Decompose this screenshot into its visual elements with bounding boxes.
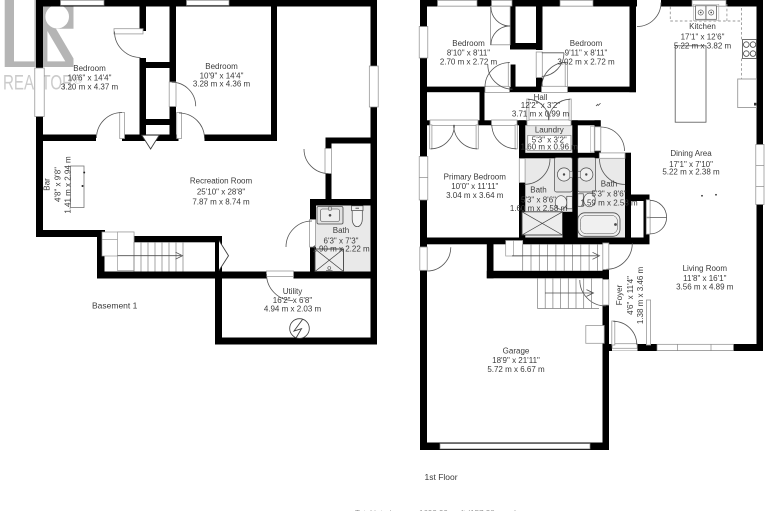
svg-text:10'0" x 11'11": 10'0" x 11'11" bbox=[451, 182, 498, 191]
svg-text:Bar: Bar bbox=[43, 178, 52, 191]
svg-text:10'6" x 14'4": 10'6" x 14'4" bbox=[68, 73, 112, 82]
svg-text:3.20 m x 4.37 m: 3.20 m x 4.37 m bbox=[61, 82, 119, 91]
svg-text:Bedroom: Bedroom bbox=[205, 62, 238, 71]
svg-text:Kitchen: Kitchen bbox=[689, 22, 716, 31]
svg-text:5.22 m x 2.38 m: 5.22 m x 2.38 m bbox=[662, 168, 720, 177]
svg-text:Basement 1: Basement 1 bbox=[92, 301, 138, 311]
svg-text:Foyer: Foyer bbox=[615, 284, 624, 305]
svg-text:3.28 m x 4.36 m: 3.28 m x 4.36 m bbox=[193, 79, 251, 88]
svg-text:4'6" x 11'4": 4'6" x 11'4" bbox=[626, 276, 635, 315]
svg-text:Utility: Utility bbox=[283, 287, 303, 296]
svg-text:5.22 m x 3.82 m: 5.22 m x 3.82 m bbox=[674, 42, 732, 51]
svg-text:3.71 m x 0.99 m: 3.71 m x 0.99 m bbox=[512, 109, 570, 118]
svg-text:Bath: Bath bbox=[601, 180, 617, 189]
svg-text:3.04 m x 3.64 m: 3.04 m x 3.64 m bbox=[446, 191, 504, 200]
svg-text:4'8" x 9'8": 4'8" x 9'8" bbox=[53, 167, 62, 202]
svg-text:Garage: Garage bbox=[503, 347, 530, 356]
svg-text:2.70 m x 2.72 m: 2.70 m x 2.72 m bbox=[440, 58, 498, 67]
svg-text:5'3" x 8'6": 5'3" x 8'6" bbox=[521, 195, 556, 204]
svg-text:Bedroom: Bedroom bbox=[73, 64, 106, 73]
svg-text:Bath: Bath bbox=[333, 226, 349, 235]
svg-text:3.02 m x 2.72 m: 3.02 m x 2.72 m bbox=[557, 58, 615, 67]
svg-text:Recreation Room: Recreation Room bbox=[190, 177, 253, 186]
svg-text:Bath: Bath bbox=[530, 186, 546, 195]
svg-text:7.87 m x 8.74 m: 7.87 m x 8.74 m bbox=[192, 198, 250, 207]
svg-text:17'1" x 12'6": 17'1" x 12'6" bbox=[681, 33, 725, 42]
svg-text:1.38 m x 3.46 m: 1.38 m x 3.46 m bbox=[636, 266, 645, 324]
svg-text:8'10" x 8'11": 8'10" x 8'11" bbox=[447, 49, 490, 58]
svg-text:Bedroom: Bedroom bbox=[570, 39, 603, 48]
svg-text:5'3" x 8'6": 5'3" x 8'6" bbox=[592, 190, 627, 199]
svg-text:5.72 m x 6.67 m: 5.72 m x 6.67 m bbox=[487, 365, 545, 374]
svg-text:Bedroom: Bedroom bbox=[452, 39, 485, 48]
svg-text:Primary Bedroom: Primary Bedroom bbox=[444, 172, 507, 181]
svg-text:1.60 m x 2.58 m: 1.60 m x 2.58 m bbox=[510, 204, 568, 213]
svg-text:1st Floor: 1st Floor bbox=[425, 472, 458, 482]
svg-text:Laundry: Laundry bbox=[535, 125, 564, 134]
svg-text:1.59 m x 2.58 m: 1.59 m x 2.58 m bbox=[580, 198, 638, 207]
svg-text:4.94 m x 2.03 m: 4.94 m x 2.03 m bbox=[264, 304, 322, 313]
svg-text:25'10" x 28'8": 25'10" x 28'8" bbox=[197, 188, 245, 197]
svg-text:1.41 m x 2.94 m: 1.41 m x 2.94 m bbox=[64, 156, 73, 214]
svg-text:3.56 m x 4.89 m: 3.56 m x 4.89 m bbox=[676, 282, 734, 291]
svg-text:1.90 m x 2.22 m: 1.90 m x 2.22 m bbox=[312, 245, 370, 254]
svg-text:Living Room: Living Room bbox=[683, 264, 728, 273]
svg-text:9'11" x 8'11": 9'11" x 8'11" bbox=[565, 49, 608, 58]
svg-text:1.60 m x 0.96 m: 1.60 m x 0.96 m bbox=[521, 143, 579, 152]
svg-text:Dining Area: Dining Area bbox=[670, 149, 712, 158]
svg-text:18'9" x 21'11": 18'9" x 21'11" bbox=[492, 356, 540, 365]
